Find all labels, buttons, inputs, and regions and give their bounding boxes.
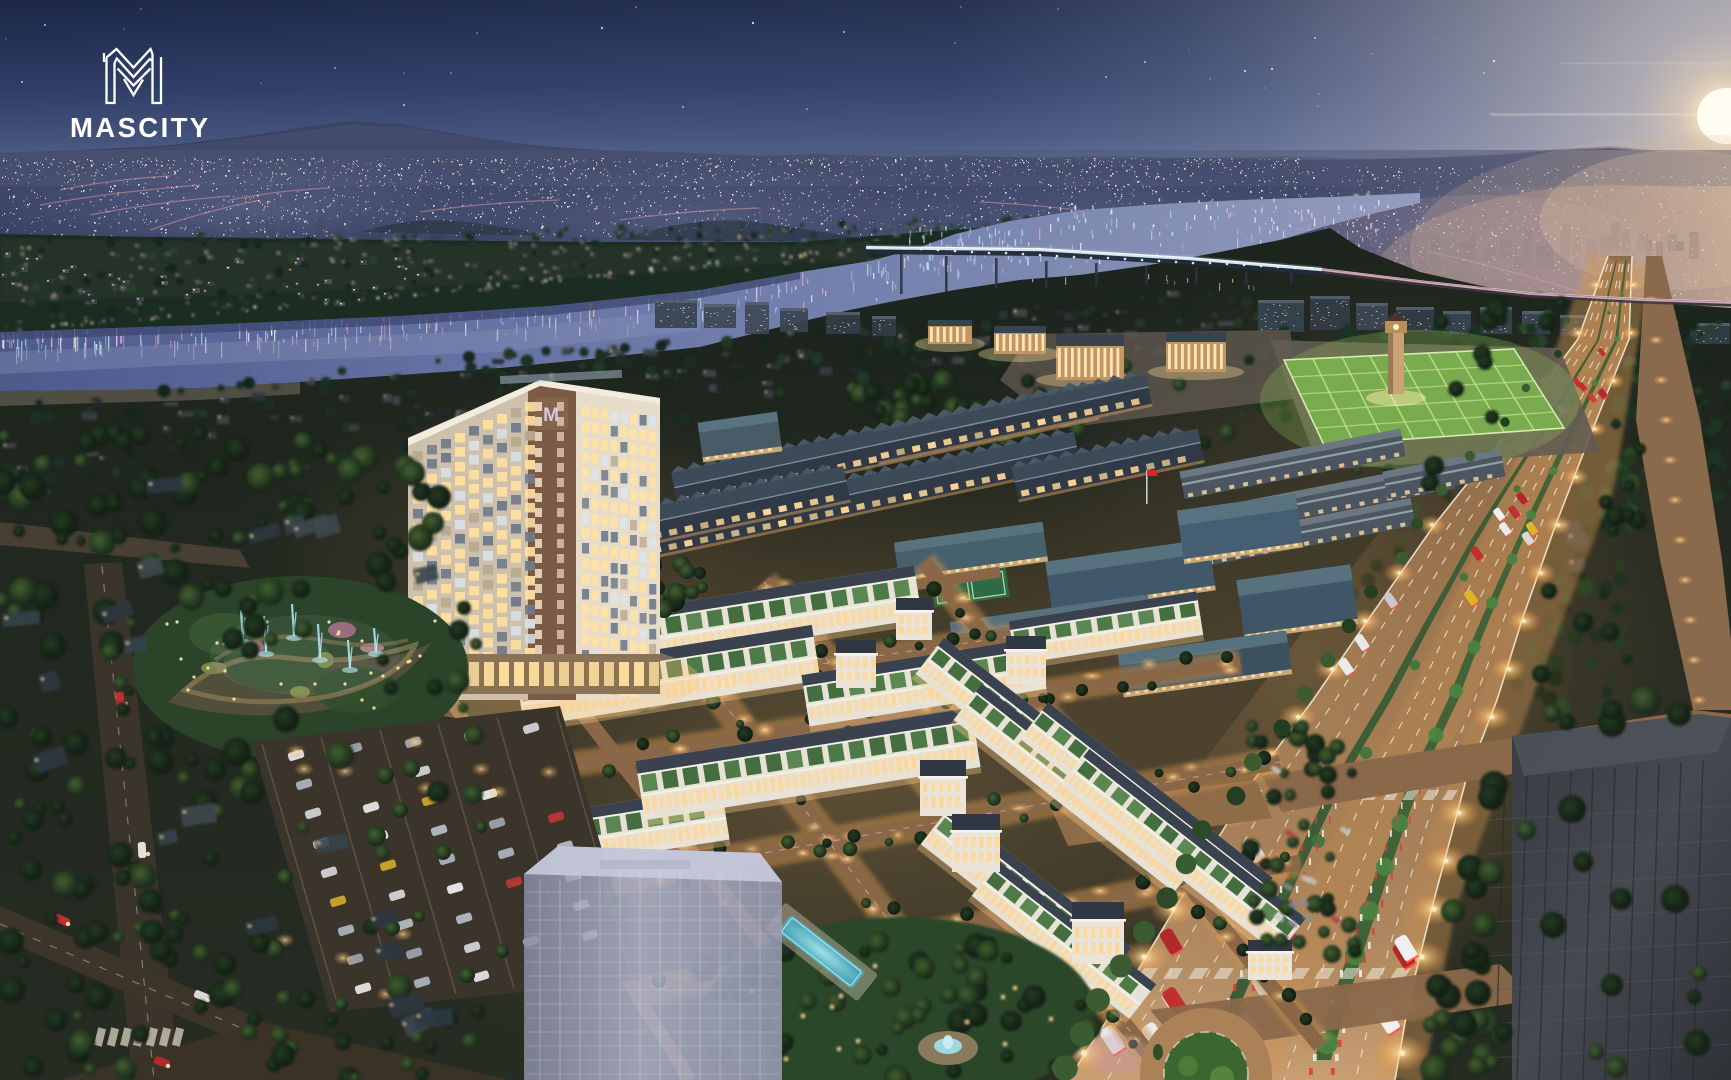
- svg-text:M: M: [543, 405, 559, 426]
